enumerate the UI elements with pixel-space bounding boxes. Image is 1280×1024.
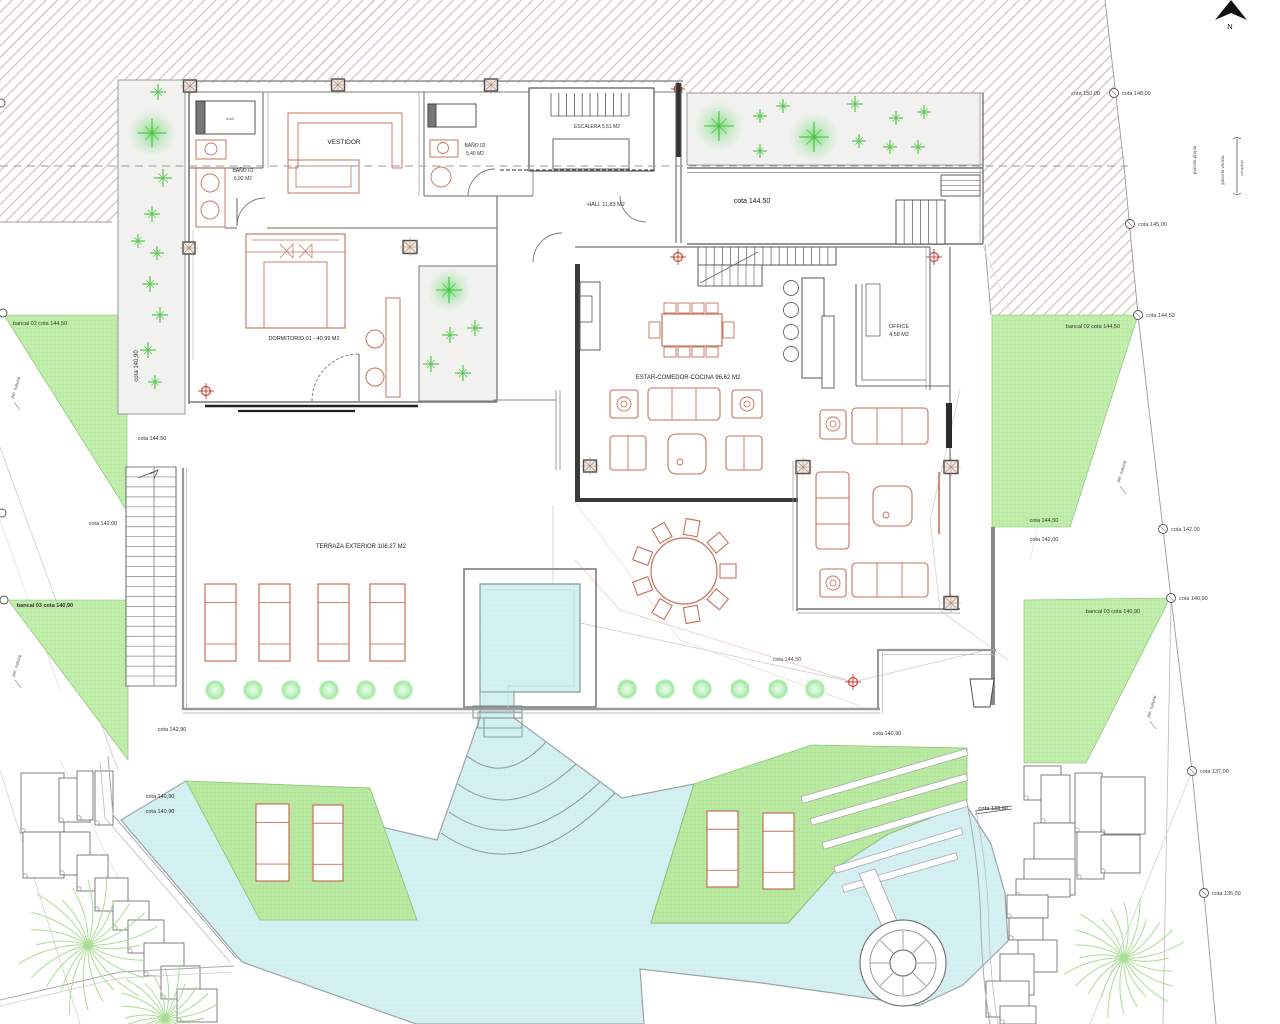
svg-text:cota 136,00: cota 136,00 xyxy=(1212,891,1241,897)
svg-text:cota 144,50: cota 144,50 xyxy=(1030,518,1059,524)
svg-text:cota 150,00: cota 150,00 xyxy=(1071,91,1100,97)
svg-text:cota 140,90: cota 140,90 xyxy=(134,350,140,382)
svg-text:cota 144.50: cota 144.50 xyxy=(734,198,771,205)
svg-text:DORMITORIO 01 - 40,99 M2: DORMITORIO 01 - 40,99 M2 xyxy=(268,336,339,342)
svg-text:cota 142,00: cota 142,00 xyxy=(1171,527,1200,533)
svg-text:cota 142,00: cota 142,00 xyxy=(1030,537,1059,543)
svg-text:cota 144.50: cota 144.50 xyxy=(138,436,167,442)
svg-text:cota 145,00: cota 145,00 xyxy=(1138,222,1167,228)
svg-text:VESTIDOR: VESTIDOR xyxy=(327,139,361,146)
svg-text:N: N xyxy=(1227,22,1232,31)
svg-text:parcela propia: parcela propia xyxy=(1192,145,1197,174)
svg-text:BAÑO 01: BAÑO 01 xyxy=(232,167,253,174)
svg-text:cota 140,90: cota 140,90 xyxy=(1179,596,1208,602)
svg-text:ESCALERA 5,51 M2: ESCALERA 5,51 M2 xyxy=(574,124,620,130)
svg-text:cota 137,00: cota 137,00 xyxy=(1200,769,1229,775)
svg-text:cota 142,00: cota 142,00 xyxy=(89,521,118,527)
svg-text:parcela vecina: parcela vecina xyxy=(1220,155,1225,185)
svg-text:OFFICE: OFFICE xyxy=(889,324,909,330)
svg-text:cota 140,90: cota 140,90 xyxy=(146,809,175,815)
svg-text:bancal 03 cota 140,90: bancal 03 cota 140,90 xyxy=(1086,609,1140,615)
svg-text:cota 140,90: cota 140,90 xyxy=(146,794,175,800)
svg-text:HALL 11,83 M2: HALL 11,83 M2 xyxy=(587,202,625,208)
svg-text:cota 140,90: cota 140,90 xyxy=(873,731,902,737)
svg-text:6,92 M2: 6,92 M2 xyxy=(234,176,252,182)
svg-text:bancal 02 cota 144,50: bancal 02 cota 144,50 xyxy=(13,321,67,327)
svg-text:5,40 M2: 5,40 M2 xyxy=(466,151,484,157)
svg-text:bancal 02 cota 144,50: bancal 02 cota 144,50 xyxy=(1066,324,1120,330)
svg-text:cota 148,00: cota 148,00 xyxy=(1122,91,1151,97)
svg-text:TERRAZA EXTERIOR 106,27 M2: TERRAZA EXTERIOR 106,27 M2 xyxy=(316,544,407,550)
svg-text:closet: closet xyxy=(226,117,234,121)
svg-text:cota 144,50: cota 144,50 xyxy=(773,657,802,663)
svg-text:bancal 03 cota 140,90: bancal 03 cota 140,90 xyxy=(17,603,73,609)
svg-text:cota 142,90: cota 142,90 xyxy=(158,727,187,733)
svg-text:4,58 M2: 4,58 M2 xyxy=(889,332,909,338)
svg-text:ESTAR-COMEDOR-COCINA 96,62 M2: ESTAR-COMEDOR-COCINA 96,62 M2 xyxy=(636,375,741,381)
svg-text:cota 144,50: cota 144,50 xyxy=(1146,313,1175,319)
svg-text:complejo: complejo xyxy=(1239,159,1244,176)
svg-text:BAÑO 02: BAÑO 02 xyxy=(464,142,485,149)
